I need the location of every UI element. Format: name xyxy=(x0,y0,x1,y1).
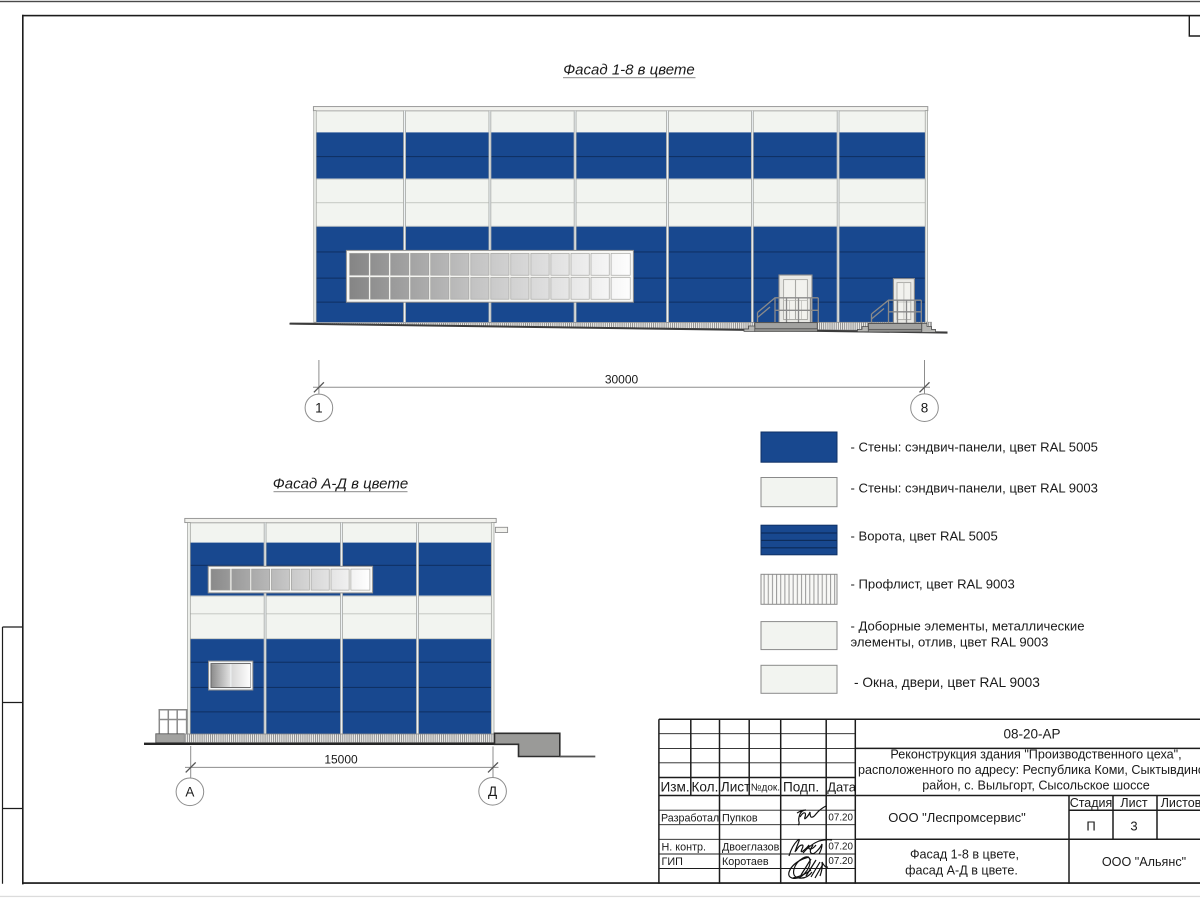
svg-text:Разработал: Разработал xyxy=(661,813,719,825)
svg-text:Подп.: Подп. xyxy=(783,780,819,795)
svg-text:Дата: Дата xyxy=(827,780,857,795)
svg-text:расположенного по адресу: Респ: расположенного по адресу: Республика Ком… xyxy=(858,763,1200,777)
svg-text:фасад А-Д в цвете.: фасад А-Д в цвете. xyxy=(905,864,1018,878)
svg-text:3: 3 xyxy=(1130,819,1137,834)
svg-text:А: А xyxy=(185,785,194,800)
svg-text:Реконструкция здания "Производ: Реконструкция здания "Производственного … xyxy=(890,748,1181,762)
svg-text:Листов: Листов xyxy=(1161,796,1200,810)
svg-text:Фасад А-Д в цвете: Фасад А-Д в цвете xyxy=(273,476,408,493)
svg-text:ГИП: ГИП xyxy=(662,856,683,868)
svg-text:Лист: Лист xyxy=(721,780,751,795)
svg-text:Стадия: Стадия xyxy=(1070,796,1113,810)
svg-text:8: 8 xyxy=(921,400,929,415)
svg-text:Д: Д xyxy=(488,784,497,799)
svg-text:Н. контр.: Н. контр. xyxy=(662,842,707,854)
svg-text:- Доборные элементы, металличе: - Доборные элементы, металлические xyxy=(851,619,1085,634)
svg-text:- Стены: сэндвич-панели, цвет: - Стены: сэндвич-панели, цвет RAL 5005 xyxy=(851,440,1098,455)
svg-text:Фасад 1-8 в цвете,: Фасад 1-8 в цвете, xyxy=(910,848,1019,862)
svg-text:- Стены: сэндвич-панели, цвет: - Стены: сэндвич-панели, цвет RAL 9003 xyxy=(851,481,1098,496)
svg-text:№док.: №док. xyxy=(751,783,780,794)
svg-text:элементы, отлив, цвет RAL 9003: элементы, отлив, цвет RAL 9003 xyxy=(851,635,1049,650)
svg-text:07.20: 07.20 xyxy=(828,813,853,824)
svg-text:07.20: 07.20 xyxy=(828,856,853,867)
svg-text:Фасад 1-8 в цвете: Фасад 1-8 в цвете xyxy=(563,62,695,79)
svg-text:- Ворота, цвет RAL 5005: - Ворота, цвет RAL 5005 xyxy=(851,529,998,544)
svg-text:07.20: 07.20 xyxy=(828,842,853,853)
svg-text:- Профлист, цвет RAL 9003: - Профлист, цвет RAL 9003 xyxy=(851,577,1015,592)
svg-text:Коротаев: Коротаев xyxy=(722,856,769,868)
svg-text:30000: 30000 xyxy=(605,373,639,387)
svg-text:Пупков: Пупков xyxy=(722,813,758,825)
svg-text:ООО "Леспромсервис": ООО "Леспромсервис" xyxy=(888,810,1026,825)
svg-text:Двоеглазов: Двоеглазов xyxy=(722,842,780,854)
svg-text:1: 1 xyxy=(315,401,323,416)
svg-text:15000: 15000 xyxy=(324,753,358,767)
svg-text:П: П xyxy=(1086,819,1095,834)
svg-text:район, с. Выльгорт, Сысольское: район, с. Выльгорт, Сысольское шоссе xyxy=(922,779,1149,793)
svg-text:Кол.: Кол. xyxy=(692,780,719,795)
svg-text:Лист: Лист xyxy=(1120,796,1147,810)
svg-text:Изм.: Изм. xyxy=(661,780,690,795)
svg-text:08-20-АР: 08-20-АР xyxy=(1003,727,1060,742)
svg-text:ООО "Альянс": ООО "Альянс" xyxy=(1102,855,1186,869)
svg-text:- Окна, двери, цвет RAL 9003: - Окна, двери, цвет RAL 9003 xyxy=(854,675,1040,690)
